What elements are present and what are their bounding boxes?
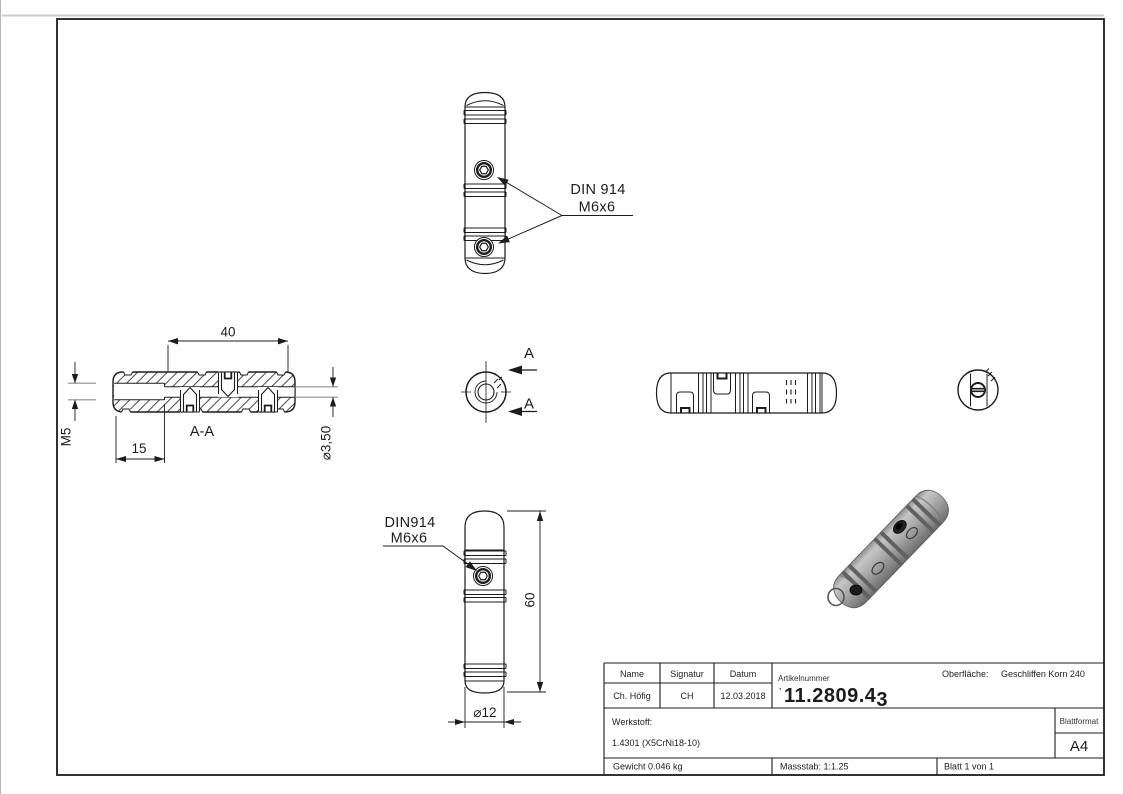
tb-sheet: Blatt 1 von 1 [944,762,994,772]
tb-article-prefix: ’ [779,687,781,698]
dim-d12-text: ⌀12 [473,705,496,720]
dim-d350: ⌀3,50 [295,367,338,460]
dim-15-text: 15 [131,441,146,456]
tb-name-value: Ch. Höfig [613,691,651,701]
dim-60-text: 60 [523,592,538,607]
set-screw-icon [475,238,494,257]
tb-format-label: Blattformat [1060,717,1099,726]
tb-material-value: 1.4301 (X5CrNi18-10) [612,738,700,748]
din914-callout-line2: M6x6 [391,531,428,547]
section-arrow-icon [508,366,522,375]
front-view [464,511,506,693]
tb-name-header: Name [620,669,644,679]
leader-arrow-icon [466,561,477,571]
side-view-screw-slots [677,373,770,413]
top-view [464,93,506,274]
din914-callout-line1: DIN 914 [570,182,625,198]
tb-article-label: Artikelnummer [778,674,830,683]
top-view-callout: DIN 914 M6x6 [497,177,633,244]
dim-m5: M5 [59,362,97,446]
tb-date-value: 12.03.2018 [720,691,765,701]
tb-format-value: A4 [1070,738,1088,755]
leader-arrow-icon [497,177,509,186]
section-arrow-label-top: A [524,345,534,362]
title-block: Name Signatur Datum Ch. Höfig CH 12.03.2… [604,663,1104,775]
drawing-sheet: DIN 914 M6x6 [0,0,1123,794]
set-screw-end-icon [971,383,985,397]
knurl-marks [787,380,796,404]
front-view-callout: DIN914 M6x6 [383,515,477,571]
leader-arrow-icon [498,236,510,244]
dim-m5-text: M5 [59,428,74,447]
side-view [657,373,837,413]
section-arrow-label-bottom: A [524,396,534,413]
dim-d350-text: ⌀3,50 [319,426,334,460]
din914-callout-line2: M6x6 [579,200,616,216]
din914-callout-line1: DIN914 [385,515,436,531]
section-arrow-icon [508,407,522,416]
set-screw-icon [474,567,493,586]
isometric-view [827,483,956,614]
section-view: 40 15 M5 ⌀3,50 A-A [59,325,339,464]
tb-material-label: Werkstoff: [612,717,652,727]
technical-drawing: DIN 914 M6x6 [0,0,1123,794]
dim-60: 60 [507,511,546,692]
dim-40-text: 40 [220,325,235,340]
tb-signature-header: Signatur [670,669,704,679]
section-cut-view: A A [461,345,537,423]
tb-scale: Massstab: 1:1.25 [780,762,849,772]
set-screw-icon [475,161,494,180]
end-view [958,369,998,411]
tb-surface-label: Oberfläche: [942,669,989,679]
dim-40: 40 [168,325,288,372]
tb-article-number: 11.2809.43 [784,685,888,711]
end-hole-3d [850,585,862,595]
tb-weight: Gewicht 0.046 kg [613,762,683,772]
section-label: A-A [190,424,215,440]
tb-date-header: Datum [730,669,757,679]
tb-signature-value: CH [681,691,694,701]
tb-surface-value: Geschliffen Korn 240 [1001,669,1085,679]
